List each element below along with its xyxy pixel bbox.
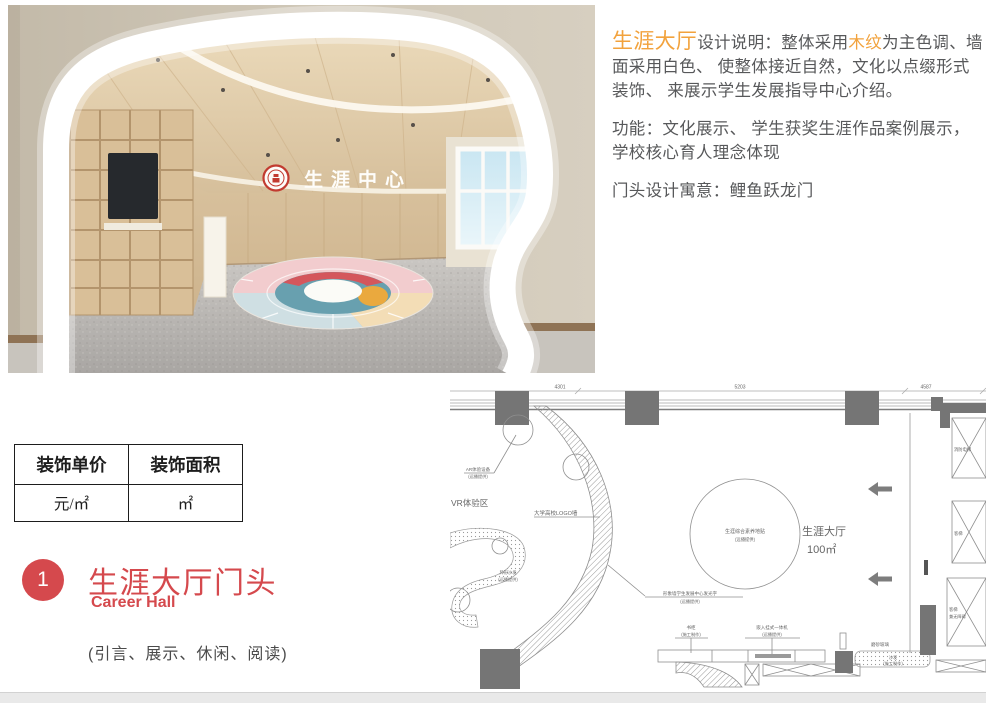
side-doorway [204,217,226,297]
floor-decal [233,257,433,329]
vr-zone-label: VR体验区 [451,498,489,508]
glow-wall-label: 形象墙学生发展中心发光字 [663,590,717,597]
frosted-glass-label: 磨砂玻璃 [871,641,889,648]
sofa-sublabel: (施工制作) [883,660,903,667]
hall-area-label: 100㎡ [807,543,836,556]
logo-wall-label: 大学高校LOGO墙 [534,509,578,517]
page: { "photo": { "wall_logo": "生涯中心" }, "des… [0,0,986,703]
dimension-value: 5203 [734,385,745,391]
floor-plan: 4301 5203 4587 [450,383,986,703]
top-wall [450,400,986,410]
sofa-label: 沙发 [889,654,898,661]
hall-name-label: 生涯大厅 [802,524,846,538]
glow-wall-sublabel: (远播提供) [680,598,700,605]
floor-decal-sublabel: (远播提供) [735,536,756,543]
accessible-elevator-sublabel: 兼无障碍 [949,613,967,620]
bottom-counter [658,650,825,662]
curved-logo-wall [506,406,612,667]
hall-name-highlight: 生涯大厅 [612,30,697,53]
dimension-value: 4301 [554,385,565,391]
value-unit-price: 元/㎡ [15,485,129,522]
wall-logo-text: 生涯中心 [304,168,412,191]
accessible-elevator-box [947,578,986,646]
bottom-curved-wall [676,662,742,687]
ar-device-sublabel: (远播提供) [468,473,488,480]
header-area: 装饰面积 [129,445,243,485]
shaped-sofa-sublabel: (远播提供) [498,576,518,583]
column-bottom [835,651,853,673]
floor-decal-label: 生涯综合素养地贴 [725,528,765,535]
motto-paragraph: 门头设计寓意：鲤鱼跃龙门 [612,179,986,203]
section-number-badge: 1 [22,559,64,601]
school-emblem [264,166,289,191]
section-subtitle: Career Hall [91,594,176,612]
section-number: 1 [37,568,49,592]
machine-sublabel: (远播提供) [762,631,782,638]
tv-screen [108,153,158,219]
fire-elevator-label: 消防电梯 [954,446,972,453]
footer-strip [0,692,986,703]
ar-device-label: AR体验设备 [466,466,491,473]
wood-highlight: 木纹 [848,34,882,52]
shaped-sofa-label: 异形沙发 [499,569,517,576]
accessible-elevator-label: 客梯 [949,606,958,613]
description-paragraph: 生涯大厅设计说明：整体采用木纹为主色调、墙面采用白色、 使整体接近自然，文化以点… [612,30,986,103]
header-unit-price: 装饰单价 [15,445,129,485]
dimension-line [450,388,986,394]
decoration-table: 装饰单价 装饰面积 元/㎡ ㎡ [14,444,243,522]
bookcase-sublabel: (施工制作) [681,631,701,638]
floor-plan-drawing: 4301 5203 4587 [450,383,986,703]
elevator-label: 客梯 [954,530,963,537]
table-value-row: 元/㎡ ㎡ [15,485,243,522]
hero-rendering-photo: 生涯中心 [8,5,595,373]
table-header-row: 装饰单价 装饰面积 [15,445,243,485]
bookcase-label: 书柜 [687,624,696,631]
design-description: 生涯大厅设计说明：整体采用木纹为主色调、墙面采用白色、 使整体接近自然，文化以点… [612,30,986,203]
column-bottom-left [480,649,520,689]
section-tags: (引言、展示、休闲、阅读) [88,640,288,664]
dimension-value: 4587 [920,385,931,391]
value-area: ㎡ [129,485,243,522]
bottom-right-cabinet [936,660,986,672]
left-arrow-icon [868,482,892,586]
function-paragraph: 功能：文化展示、 学生获奖生涯作品案例展示，学校核心育人理念体现 [612,117,986,165]
machine-label: 嵌入挂式一体机 [756,624,788,631]
hero-rendering-illustration: 生涯中心 [8,5,595,373]
